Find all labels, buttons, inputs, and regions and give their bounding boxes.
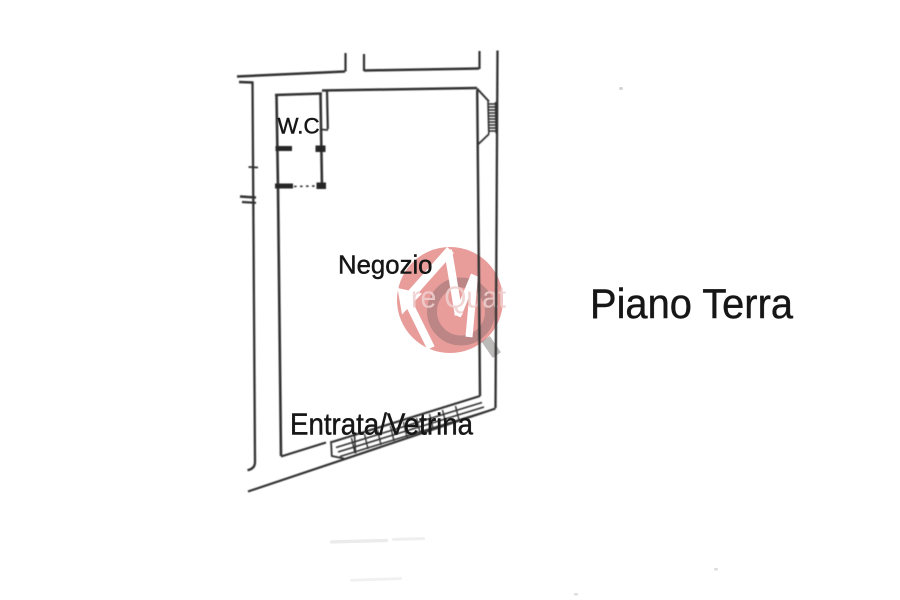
- svg-text:Negozio: Negozio: [338, 250, 433, 280]
- svg-text:Entrata/Vetrina: Entrata/Vetrina: [290, 407, 474, 442]
- svg-text:re Quat: re Quat: [411, 280, 506, 315]
- svg-text:W.C: W.C: [278, 114, 320, 139]
- svg-text:Piano Terra: Piano Terra: [590, 280, 794, 327]
